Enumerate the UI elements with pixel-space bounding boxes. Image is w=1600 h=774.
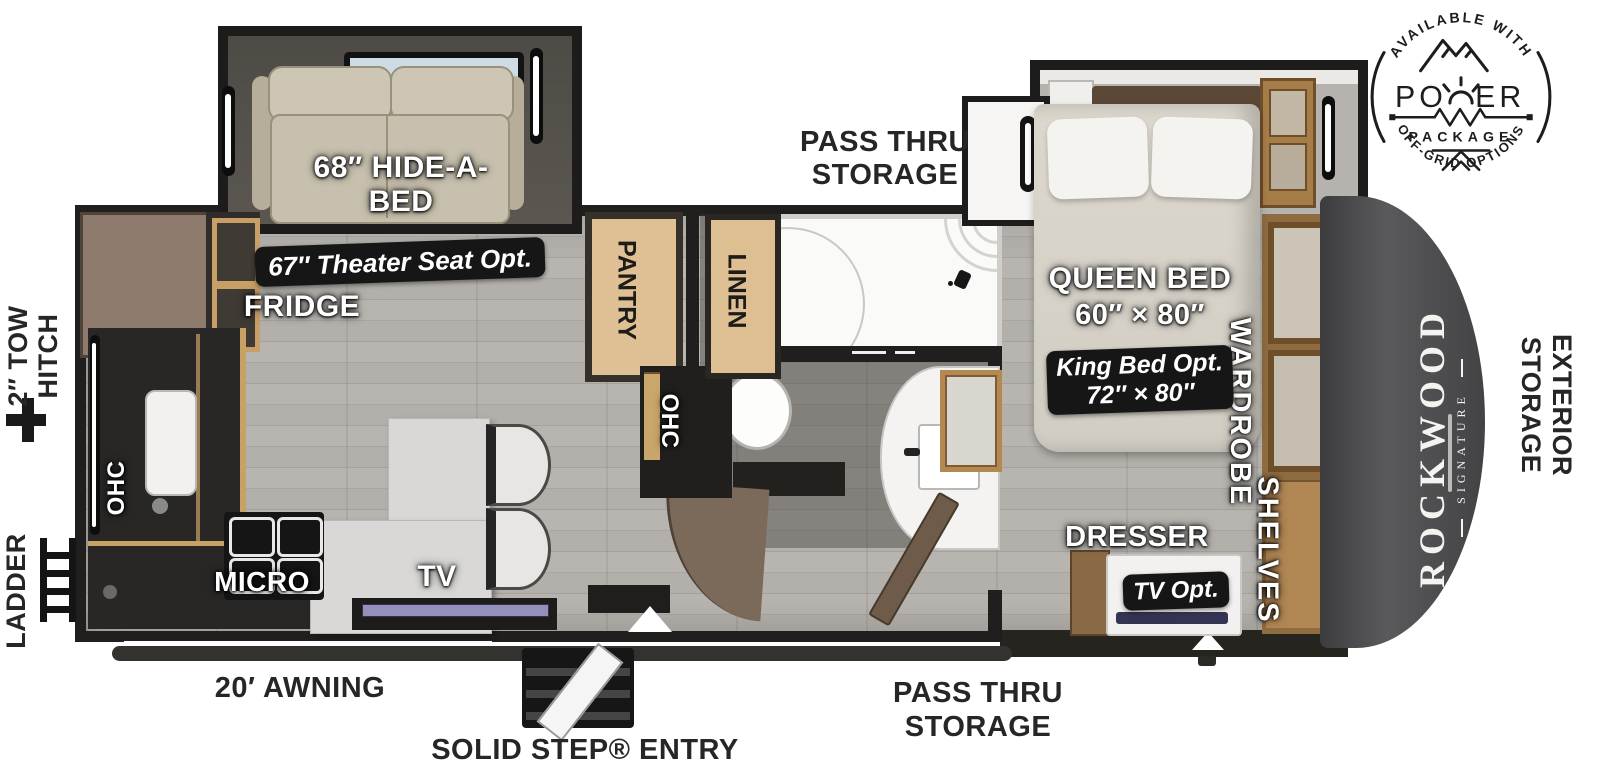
label-ohc-mid: OHC <box>655 381 683 461</box>
label-pass-thru-bottom: PASS THRUSTORAGE <box>868 676 1088 744</box>
label-pass-thru-top: PASS THRUSTORAGE <box>775 126 995 192</box>
label-ladder: LADDER <box>1 521 31 661</box>
kitchen-sink <box>145 390 197 496</box>
pillow <box>1151 116 1254 199</box>
faucet-marks <box>895 351 915 354</box>
power-package-badge: AVAILABLE WITH OFF-GRID OPTIONS PO ER PA… <box>1362 0 1560 196</box>
medicine-cabinet <box>940 370 1002 472</box>
ladder-icon <box>40 538 76 622</box>
label-awning: 20′ AWNING <box>200 672 400 704</box>
label-queen-bed: QUEEN BED <box>1040 262 1240 296</box>
label-micro: MICRO <box>192 566 332 597</box>
label-wardrobe: WARDROBE <box>1225 262 1255 562</box>
skirt-tab <box>1198 656 1216 666</box>
dinette-chair <box>486 424 551 506</box>
awning-rail-highlight <box>124 641 492 644</box>
badge-power-right: ER <box>1475 81 1525 114</box>
cabinet-knob <box>103 585 117 599</box>
mountains-icon <box>1421 40 1488 70</box>
label-exterior-storage: EXTERIORSTORAGE <box>1513 330 1577 480</box>
svg-text:AVAILABLE WITH: AVAILABLE WITH <box>1386 9 1536 60</box>
label-dresser: DRESSER <box>1047 521 1227 553</box>
entry-steps <box>522 648 634 728</box>
label-pantry: PANTRY <box>613 223 641 358</box>
label-tow-hitch: 2″ TOWHITCH <box>3 281 63 431</box>
label-solid-step: SOLID STEP® ENTRY <box>420 734 750 766</box>
pillow <box>1047 116 1150 199</box>
window <box>1322 96 1335 180</box>
dresser-tv <box>1116 612 1228 624</box>
dinette-chair <box>486 508 551 590</box>
shower <box>758 214 1002 358</box>
brand-name: ROCKWOOD <box>1412 308 1452 588</box>
badge-package: PACKAGE <box>1409 128 1514 144</box>
badge-available-with: AVAILABLE WITH <box>1386 9 1536 60</box>
label-tv: TV <box>397 560 477 594</box>
front-cap: ROCKWOOD SIGNATURE <box>1320 196 1485 648</box>
label-hide-a-bed: 68″ HIDE-A-BED <box>286 151 516 218</box>
window <box>530 48 543 144</box>
badge-ring-left <box>1372 53 1384 142</box>
label-ohc-left: OHC <box>103 438 131 538</box>
badge-tv-opt: TV Opt. <box>1122 571 1229 611</box>
vanity-faucet <box>904 448 920 456</box>
label-queen-size: 60″ × 80″ <box>1040 299 1240 331</box>
window <box>222 86 235 176</box>
shower-head-icon <box>953 269 972 290</box>
entry-door-marker <box>628 606 672 632</box>
badge-king-opt: King Bed Opt.72″ × 80″ <box>1046 345 1234 415</box>
sun-icon <box>1444 78 1478 103</box>
brand-subtitle: SIGNATURE <box>1452 308 1470 588</box>
label-fridge: FRIDGE <box>222 290 382 324</box>
brand-logo: ROCKWOOD SIGNATURE <box>1412 308 1478 588</box>
window <box>90 335 100 535</box>
bedside-cabinet <box>1260 78 1316 208</box>
faucet-marks <box>852 351 886 354</box>
badge-power-left: PO <box>1395 81 1447 114</box>
wall-segment <box>988 590 1002 642</box>
badge-ring-right <box>1538 53 1550 142</box>
bath-divider <box>758 346 1002 362</box>
dresser-wood <box>1070 550 1110 636</box>
rv-floorplan: ROCKWOOD SIGNATURE 68″ HIDE-A-BED 67″ Th… <box>0 0 1600 774</box>
label-linen: LINEN <box>724 224 750 359</box>
tv-cabinet <box>352 598 557 630</box>
sink-faucet <box>152 498 168 514</box>
ohc-wall <box>640 366 732 498</box>
label-shelves: SHELVES <box>1253 463 1283 638</box>
